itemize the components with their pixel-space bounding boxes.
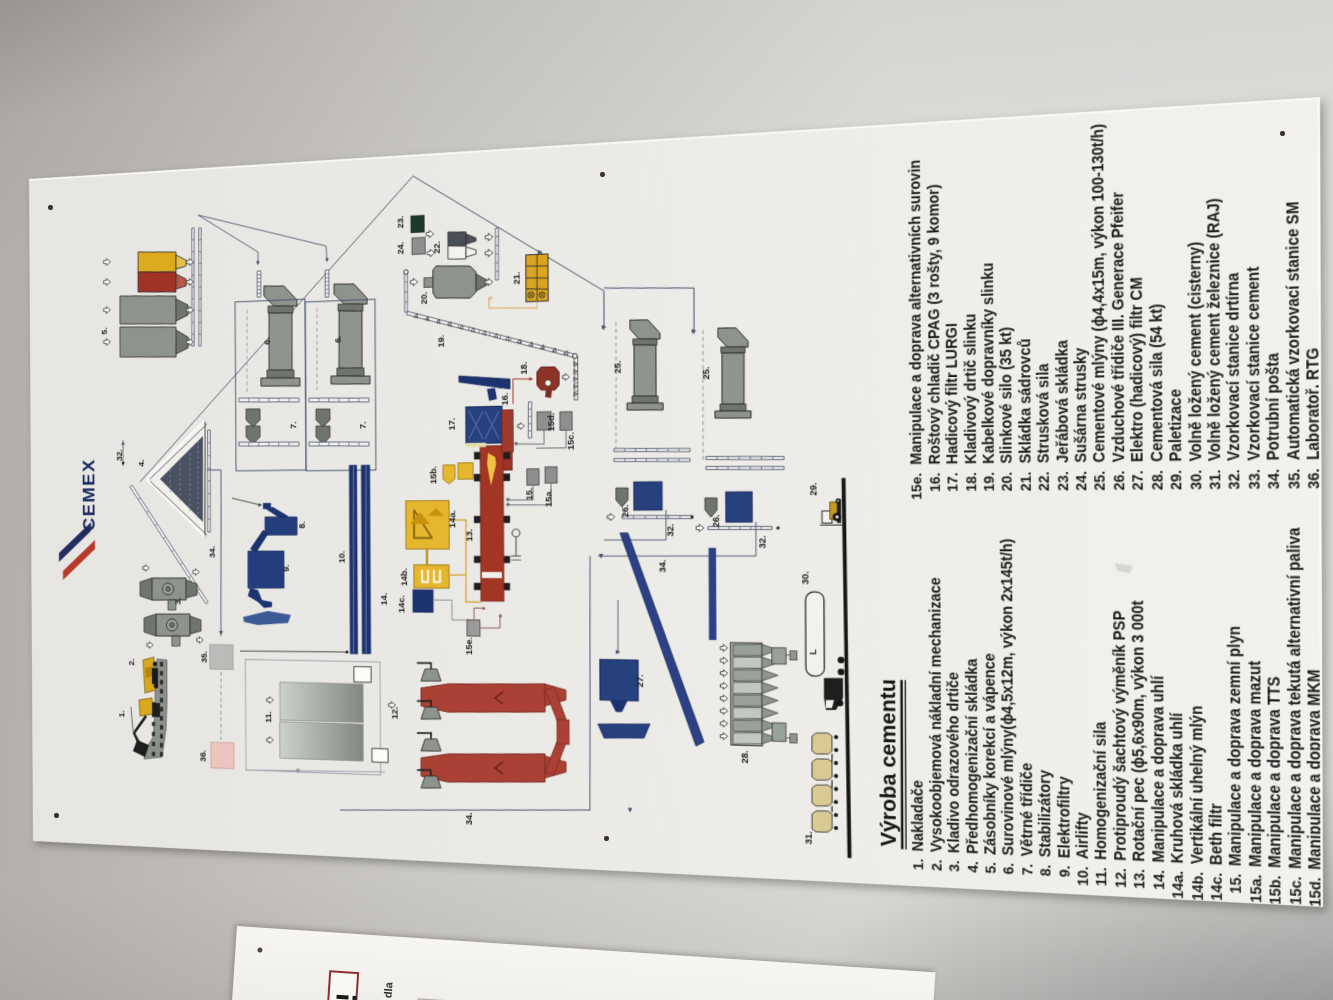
svg-text:30.: 30. [800, 571, 811, 584]
svg-text:21.: 21. [1019, 471, 1035, 491]
svg-text:26.: 26. [1112, 470, 1128, 490]
svg-text:5.: 5. [100, 327, 109, 335]
svg-text:31.: 31. [803, 831, 814, 845]
svg-text:17.: 17. [946, 472, 961, 492]
svg-text:9.: 9. [1057, 865, 1073, 878]
svg-text:3.: 3. [174, 597, 183, 604]
svg-text:Paletizace: Paletizace [1166, 388, 1185, 461]
svg-text:Elektrofiltry: Elektrofiltry [1054, 776, 1073, 859]
svg-text:Volně ložený cement železnice: Volně ložený cement železnice (RAJ) [1204, 198, 1224, 462]
svg-text:8.: 8. [1039, 864, 1055, 877]
svg-text:24.: 24. [395, 242, 405, 255]
svg-text:2.: 2. [127, 658, 136, 665]
svg-text:34.: 34. [464, 812, 474, 825]
svg-text:Vzorkovací stanice cement: Vzorkovací stanice cement [1243, 266, 1263, 460]
svg-text:29.: 29. [808, 482, 819, 496]
svg-text:Slinkové silo (35 kt): Slinkové silo (35 kt) [997, 327, 1016, 464]
svg-text:28.: 28. [1150, 470, 1166, 490]
svg-text:14c.: 14c. [1209, 872, 1226, 901]
svg-text:CEMEX: CEMEX [79, 458, 99, 531]
svg-text:Vysokoobjemová nákladní mechan: Vysokoobjemová nákladní mechanizace [926, 577, 945, 853]
svg-text:7.: 7. [289, 421, 298, 429]
svg-text:23.: 23. [395, 216, 405, 229]
svg-text:2.: 2. [930, 859, 945, 871]
svg-text:Předhomogenizační skládka: Předhomogenizační skládka [962, 658, 981, 854]
svg-text:31.: 31. [1208, 469, 1225, 489]
svg-text:27.: 27. [1131, 470, 1147, 490]
svg-text:Automatická vzorkovací stanice: Automatická vzorkovací stanice SM [1282, 201, 1303, 460]
svg-text:12.: 12. [390, 707, 400, 720]
svg-text:25.: 25. [701, 366, 712, 379]
svg-text:32.: 32. [115, 449, 124, 461]
svg-text:7.: 7. [359, 421, 369, 429]
svg-text:15d.: 15d. [546, 413, 556, 432]
svg-text:Jeřábová skládka: Jeřábová skládka [1053, 339, 1072, 463]
svg-text:16.: 16. [928, 472, 943, 492]
svg-text:L: L [807, 649, 818, 655]
svg-text:Beth filtr: Beth filtr [1206, 802, 1226, 865]
svg-text:33.: 33. [1247, 469, 1264, 490]
svg-text:18.: 18. [964, 472, 980, 492]
svg-text:25.: 25. [1093, 471, 1109, 491]
svg-text:14.: 14. [379, 593, 389, 606]
svg-text:24.: 24. [1074, 471, 1090, 491]
svg-text:Vertikální uhelný mlýn: Vertikální uhelný mlýn [1186, 705, 1206, 864]
svg-text:15c.: 15c. [1288, 876, 1305, 905]
svg-text:17.: 17. [447, 418, 457, 431]
svg-text:11.: 11. [1095, 867, 1111, 887]
svg-text:9.: 9. [282, 564, 291, 571]
svg-text:34.: 34. [208, 546, 217, 558]
svg-text:3.: 3. [948, 860, 963, 872]
svg-text:Elektro (hadicový) filtr CM: Elektro (hadicový) filtr CM [1127, 277, 1147, 462]
svg-text:10.: 10. [1076, 866, 1092, 887]
svg-text:15b.: 15b. [428, 466, 438, 484]
svg-text:29.: 29. [1169, 470, 1186, 490]
svg-text:1.: 1. [117, 710, 126, 717]
svg-text:1.: 1. [912, 858, 927, 870]
svg-text:Manipulace a doprava TTS: Manipulace a doprava TTS [1264, 676, 1284, 868]
svg-text:10.: 10. [338, 551, 348, 563]
svg-text:6.: 6. [334, 335, 344, 343]
svg-text:30.: 30. [1188, 470, 1205, 490]
svg-text:12.: 12. [1114, 868, 1130, 889]
svg-text:Manipulace a doprava alternati: Manipulace a doprava alternativních suro… [907, 159, 926, 465]
svg-text:Manipulace a doprava zemní ply: Manipulace a doprava zemní plyn [1225, 626, 1245, 867]
svg-text:15a.: 15a. [544, 489, 554, 507]
svg-text:25.: 25. [613, 360, 623, 373]
svg-text:Manipulace a doprava uhlí: Manipulace a doprava uhlí [1148, 675, 1168, 863]
svg-text:15a.: 15a. [1248, 874, 1265, 903]
svg-text:15e.: 15e. [464, 637, 474, 655]
svg-text:Nakladače: Nakladače [909, 779, 927, 851]
svg-text:6.: 6. [1002, 862, 1018, 875]
svg-text:18.: 18. [519, 362, 529, 375]
svg-text:13.: 13. [464, 529, 474, 542]
svg-text:8.: 8. [298, 521, 307, 528]
svg-text:Homogenizační sila: Homogenizační sila [1091, 721, 1110, 860]
svg-text:Hadicový filtr LURGI: Hadicový filtr LURGI [943, 323, 962, 465]
svg-text:Kladivový drtič slinku: Kladivový drtič slinku [961, 313, 980, 464]
svg-text:13.: 13. [1132, 869, 1148, 890]
svg-text:15c.: 15c. [566, 432, 576, 450]
svg-text:22.: 22. [1037, 471, 1053, 491]
svg-text:35.: 35. [200, 651, 209, 663]
svg-text:Skládka sádrovců: Skládka sádrovců [1016, 338, 1035, 463]
svg-text:5.: 5. [984, 862, 1000, 874]
svg-text:15b.: 15b. [1268, 875, 1285, 905]
svg-text:11.: 11. [264, 711, 273, 723]
svg-text:7.: 7. [1021, 863, 1037, 876]
svg-text:32.: 32. [757, 535, 768, 548]
svg-text:32.: 32. [1227, 469, 1244, 489]
svg-text:Manipulace a doprava mazut: Manipulace a doprava mazut [1245, 661, 1265, 868]
svg-text:4.: 4. [966, 861, 982, 873]
svg-text:36.: 36. [199, 750, 208, 762]
svg-text:26.: 26. [711, 514, 722, 527]
svg-text:15e.: 15e. [910, 473, 925, 500]
svg-text:35.: 35. [1286, 469, 1303, 490]
svg-text:Potrubní pošta: Potrubní pošta [1263, 352, 1283, 460]
svg-text:14a.: 14a. [447, 510, 457, 528]
svg-text:4.: 4. [137, 459, 146, 466]
svg-text:15.: 15. [1229, 873, 1246, 894]
svg-text:Vzduchové třídiče III. Generac: Vzduchové třídiče III. Generace Pfeifer [1108, 191, 1128, 462]
svg-text:16.: 16. [500, 393, 510, 406]
svg-text:20.: 20. [1001, 472, 1017, 492]
svg-text:20.: 20. [419, 292, 429, 305]
svg-text:Výroba cementu: Výroba cementu [875, 679, 901, 847]
svg-text:Sušárna strusky: Sušárna strusky [1071, 347, 1090, 463]
svg-text:Vzorkovací stanice drtírna: Vzorkovací stanice drtírna [1224, 272, 1244, 461]
svg-text:14a.: 14a. [1171, 870, 1188, 899]
svg-text:Airlifty: Airlifty [1073, 811, 1092, 859]
svg-text:22.: 22. [432, 241, 442, 254]
svg-text:Manipulace a doprava tekutá al: Manipulace a doprava tekutá alternativní… [1283, 527, 1304, 869]
svg-text:Zásobníky korekcí a vápence: Zásobníky korekcí a vápence [981, 653, 1000, 856]
svg-text:14b.: 14b. [399, 568, 409, 586]
svg-text:Surovinové mlýny(ϕ4,5x12m, výk: Surovinové mlýny(ϕ4,5x12m, výkon 2x145t/… [998, 538, 1018, 856]
svg-text:Stabilizátory: Stabilizátory [1036, 769, 1055, 857]
svg-text:Větrné třídiče: Větrné třídiče [1017, 762, 1036, 857]
svg-text:14c.: 14c. [396, 595, 406, 613]
svg-text:19.: 19. [982, 472, 998, 492]
svg-text:Roštový chladič CPAG (3 rošty,: Roštový chladič CPAG (3 rošty, 9 komor) [924, 184, 943, 465]
svg-text:26.: 26. [620, 504, 631, 517]
svg-text:Protiproudý šachtový výměník P: Protiproudý šachtový výměník PSP [1110, 611, 1130, 862]
svg-text:15.: 15. [524, 488, 534, 501]
svg-text:Rotační pec (ϕ5,6x90m, výkon 3: Rotační pec (ϕ5,6x90m, výkon 3 000t [1129, 600, 1149, 862]
svg-text:Strusková sila: Strusková sila [1034, 363, 1053, 464]
svg-text:Kladivo odrazového drtiče: Kladivo odrazového drtiče [944, 671, 963, 853]
svg-text:19.: 19. [436, 335, 446, 348]
svg-text:Kruhová skládka uhlí: Kruhová skládka uhlí [1167, 712, 1187, 864]
svg-text:21.: 21. [512, 271, 522, 284]
svg-text:6.: 6. [263, 337, 272, 345]
svg-text:27.: 27. [635, 674, 646, 687]
svg-text:Cementové mlýny (ϕ4,4x15m, výk: Cementové mlýny (ϕ4,4x15m, výkon 100-130… [1089, 123, 1109, 462]
svg-text:34.: 34. [658, 559, 669, 572]
svg-text:32.: 32. [665, 523, 676, 536]
svg-text:23.: 23. [1056, 471, 1072, 491]
svg-text:28.: 28. [740, 750, 751, 764]
svg-text:34.: 34. [1266, 469, 1283, 490]
svg-text:14.: 14. [1151, 869, 1167, 890]
svg-text:14b.: 14b. [1190, 871, 1207, 901]
svg-text:Cementová sila (54 kt): Cementová sila (54 kt) [1146, 304, 1166, 462]
svg-text:Volně ložený cement (cisterny): Volně ložený cement (cisterny) [1185, 241, 1205, 461]
svg-text:Kabelkové dopravníky slinku: Kabelkové dopravníky slinku [979, 262, 998, 464]
